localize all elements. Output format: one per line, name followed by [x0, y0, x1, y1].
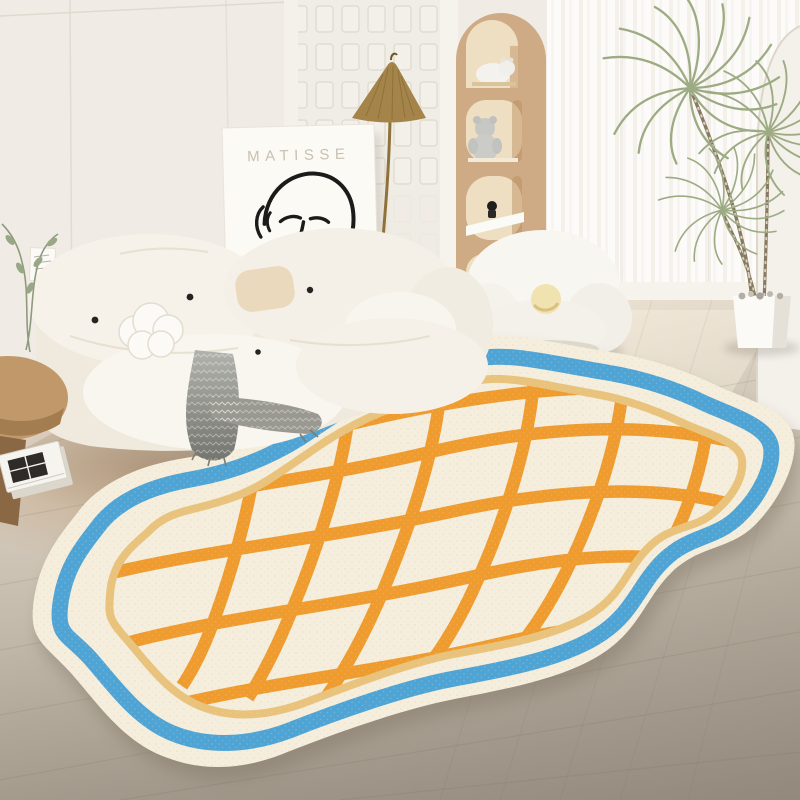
shelf-board — [468, 158, 518, 162]
living-room-canvas: MATISSE — [0, 0, 800, 800]
shelf-board — [472, 82, 516, 86]
seat-cushion-right — [296, 318, 488, 414]
poster-title: MATISSE — [247, 146, 351, 166]
window-frame-shadow — [620, 0, 623, 298]
arch-frame-edge — [440, 0, 458, 302]
living-room-photo: MATISSE — [0, 0, 800, 800]
